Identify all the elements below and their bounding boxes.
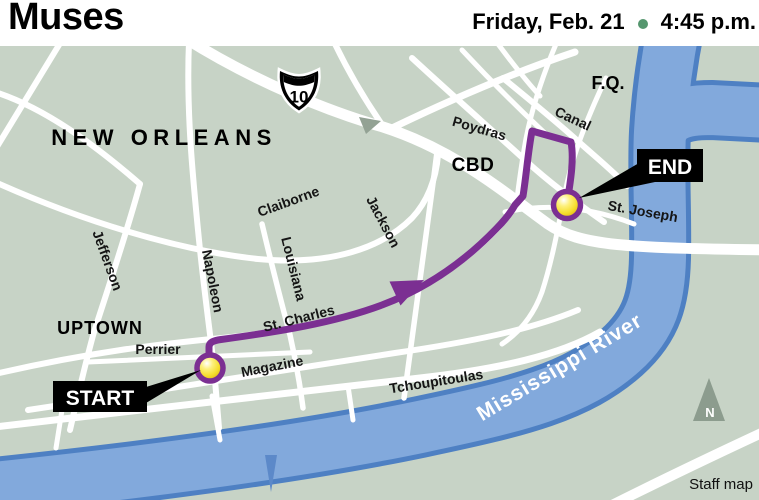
map-credit: Staff map — [689, 476, 753, 493]
interstate-number: 10 — [290, 88, 309, 107]
event-time: 4:45 p.m. — [661, 9, 756, 35]
page-title: Muses — [8, 0, 124, 39]
region-label-uptown: UPTOWN — [57, 318, 143, 338]
end-callout-label: END — [648, 156, 692, 179]
north-arrow-label: N — [705, 405, 714, 420]
event-datetime: Friday, Feb. 21 4:45 p.m. — [472, 9, 756, 35]
map-canvas: 10 START END NEW ORLEANS UPTOWN CBD F.Q.… — [0, 0, 759, 500]
event-date: Friday, Feb. 21 — [472, 9, 624, 35]
start-marker — [197, 355, 223, 381]
region-label-cbd: CBD — [452, 155, 495, 176]
start-callout-label: START — [66, 387, 135, 410]
parade-route-map: 10 START END NEW ORLEANS UPTOWN CBD F.Q.… — [0, 0, 759, 500]
header-bar: Muses Friday, Feb. 21 4:45 p.m. — [0, 0, 759, 46]
street-label-perrier: Perrier — [135, 341, 181, 357]
separator-dot-icon — [638, 19, 648, 29]
region-label-french-quarter: F.Q. — [591, 73, 624, 93]
end-marker — [554, 192, 581, 219]
region-label-new-orleans: NEW ORLEANS — [51, 125, 277, 150]
